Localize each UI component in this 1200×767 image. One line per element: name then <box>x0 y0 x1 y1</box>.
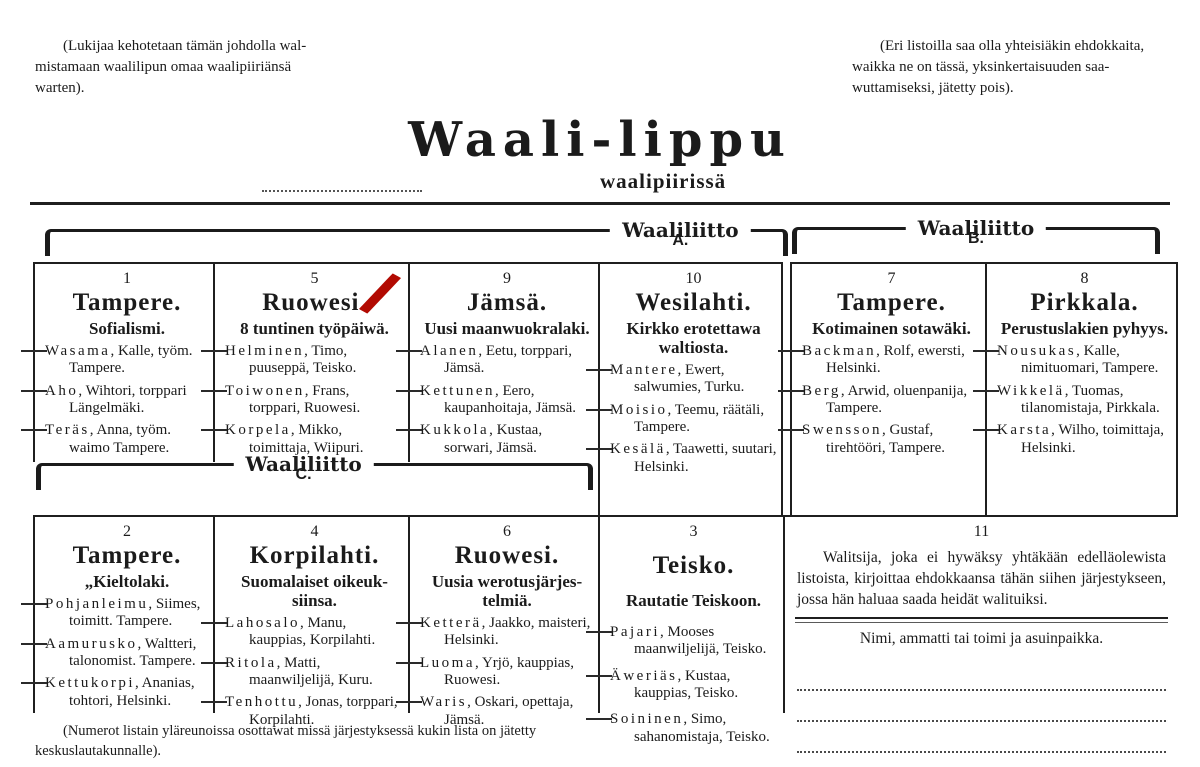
writein-blank-line <box>797 691 1166 722</box>
candidate-list: Helminen, Timo, puuseppä, Teisko.Toiwone… <box>225 343 404 457</box>
candidate-surname: Wasama <box>45 343 110 359</box>
page-subtitle: waalipiirissä <box>600 169 726 194</box>
candidate-surname: Karsta <box>997 422 1051 438</box>
candidate-surname: Swensson <box>802 422 882 438</box>
candidate-surname: Lahosalo <box>225 615 300 631</box>
candidate-surname: Teräs <box>45 422 90 438</box>
list-column: 10Wesilahti.Kirkko erotettawa waltiosta.… <box>598 266 781 481</box>
candidate-dash-line <box>201 622 227 624</box>
candidate-surname: Mantere <box>610 362 677 378</box>
writein-blank-line <box>797 722 1166 753</box>
coalition-c-letter: C. <box>296 466 312 484</box>
candidate-surname: Backman <box>802 343 876 359</box>
candidate-row: Kettukorpi, Ananias, tohtori, Helsinki. <box>45 675 209 710</box>
candidate-surname: Ritola <box>225 655 277 671</box>
list-slogan: Kirkko erotettawa waltiosta. <box>610 319 777 357</box>
list-column: 6Ruowesi.Uusia werotusjärjes- telmiä.Ket… <box>408 519 598 734</box>
candidate-row: Backman, Rolf, ewersti, Helsinki. <box>802 343 981 378</box>
candidate-row: Wasama, Kalle, työm. Tampere. <box>45 343 209 378</box>
candidate-dash-line <box>201 350 227 352</box>
candidate-dash-line <box>396 622 422 624</box>
coalition-bracket-b: Waaliliitto B. <box>792 227 1160 254</box>
candidate-row: Ketterä, Jaakko, maisteri, Helsinki. <box>420 615 594 650</box>
candidate-row: Kukkola, Kustaa, sorwari, Jämsä. <box>420 422 594 457</box>
candidate-row: Toiwonen, Frans, torppari, Ruowesi. <box>225 383 404 418</box>
writein-column: 11 Walitsija, joka ei hywäksy yhtäkään e… <box>785 519 1178 753</box>
candidate-row: Lahosalo, Manu, kauppias, Korpilahti. <box>225 615 404 650</box>
candidate-row: Korpela, Mikko, toimittaja, Wiipuri. <box>225 422 404 457</box>
candidate-surname: Kettukorpi <box>45 675 135 691</box>
list-slogan: Rautatie Teiskoon. <box>610 591 777 610</box>
candidate-row: Swensson, Gustaf, tirehtööri, Tampere. <box>802 422 981 457</box>
candidate-dash-line <box>973 350 999 352</box>
candidate-dash-line <box>396 390 422 392</box>
candidate-row: Kettunen, Eero, kaupanhoitaja, Jämsä. <box>420 383 594 418</box>
candidate-row: Pajari, Mooses maanwiljelijä, Teisko. <box>610 624 777 659</box>
list-number: 2 <box>45 523 209 541</box>
candidate-dash-line <box>396 429 422 431</box>
list-column: 8Pirkkala.Perustuslakien pyhyys.Nousukas… <box>985 266 1176 462</box>
ballot-sheet: (Lukijaa kehotetaan tämän johdolla wal- … <box>0 0 1200 767</box>
candidate-surname: Toiwonen <box>225 383 305 399</box>
candidate-surname: Nousukas <box>997 343 1076 359</box>
coalition-a-letter: A. <box>672 232 688 250</box>
candidate-dash-line <box>778 390 804 392</box>
list-place-header: Teisko. <box>610 553 777 579</box>
row2-top-border <box>33 515 1178 517</box>
candidate-list: Mantere, Ewert, salwumies, Turku.Moisio,… <box>610 362 777 476</box>
list-place-header: Tampere. <box>45 290 209 316</box>
writein-divider <box>795 617 1168 623</box>
list-slogan: Uusia werotusjärjes- telmiä. <box>420 572 594 610</box>
candidate-surname: Korpela <box>225 422 291 438</box>
candidate-list: Lahosalo, Manu, kauppias, Korpilahti.Rit… <box>225 615 404 729</box>
list-place-header: Wesilahti. <box>610 290 777 316</box>
candidate-row: Aho, Wihtori, torppari Längelmäki. <box>45 383 209 418</box>
candidate-dash-line <box>586 369 612 371</box>
list-column: 4Korpilahti.Suomalaiset oikeuk- siinsa.L… <box>213 519 408 734</box>
candidate-dash-line <box>973 390 999 392</box>
candidate-row: Nousukas, Kalle, nimituomari, Tampere. <box>997 343 1172 378</box>
list-number: 9 <box>420 270 594 288</box>
list-column: 7Tampere.Kotimainen sotawäki.Backman, Ro… <box>790 266 985 462</box>
candidate-dash-line <box>586 448 612 450</box>
candidate-dash-line <box>396 662 422 664</box>
title-rule <box>30 202 1170 205</box>
candidate-dash-line <box>201 390 227 392</box>
candidate-dash-line <box>21 429 47 431</box>
candidate-dash-line <box>586 631 612 633</box>
writein-instructions: Walitsija, joka ei hywäksy yhtäkään edel… <box>797 548 1166 610</box>
candidate-row: Helminen, Timo, puuseppä, Teisko. <box>225 343 404 378</box>
candidate-dash-line <box>201 701 227 703</box>
list-number: 5 <box>225 270 404 288</box>
bottom-note: (Numerot listain yläreunoissa osottawat … <box>35 722 610 761</box>
coalition-bracket-a: Waaliliitto A. <box>45 229 788 256</box>
candidate-dash-line <box>586 409 612 411</box>
list-number: 1 <box>45 270 209 288</box>
list-place-header: Tampere. <box>802 290 981 316</box>
candidate-surname: Kukkola <box>420 422 489 438</box>
candidate-row: Äweriäs, Kustaa, kauppias, Teisko. <box>610 668 777 703</box>
list-number: 8 <box>997 270 1172 288</box>
candidate-list: Backman, Rolf, ewersti, Helsinki.Berg, A… <box>802 343 981 457</box>
candidate-list: Wasama, Kalle, työm. Tampere.Aho, Wihtor… <box>45 343 209 457</box>
list-slogan: Perustuslakien pyhyys. <box>997 319 1172 338</box>
candidate-surname: Kesälä <box>610 441 666 457</box>
candidate-surname: Pajari <box>610 624 660 640</box>
list-column: 1Tampere.Sofialismi.Wasama, Kalle, työm.… <box>33 266 213 462</box>
candidate-dash-line <box>201 429 227 431</box>
note-top-right: (Eri listoilla saa olla yhteisiäkin ehdo… <box>852 36 1177 99</box>
list-place-header: Ruowesi. <box>420 543 594 569</box>
candidate-list: Nousukas, Kalle, nimituomari, Tampere.Wi… <box>997 343 1172 457</box>
candidate-surname: Tenhottu <box>225 694 298 710</box>
candidate-list: Alanen, Eetu, torppari, Jämsä.Kettunen, … <box>420 343 594 457</box>
candidate-surname: Moisio <box>610 402 668 418</box>
writein-lines <box>795 660 1168 753</box>
list-column: 2Tampere.„Kieltolaki.Pohjanleimu, Siimes… <box>33 519 213 715</box>
writein-blank-line <box>797 660 1166 691</box>
candidate-row: Soininen, Simo, sahanomistaja, Teisko. <box>610 711 777 746</box>
candidate-dash-line <box>21 682 47 684</box>
list-place-header: Pirkkala. <box>997 290 1172 316</box>
list-slogan: Uusi maanwuokralaki. <box>420 319 594 338</box>
list-slogan: 8 tuntinen työpäiwä. <box>225 319 404 338</box>
candidate-dash-line <box>778 350 804 352</box>
list-slogan: Kotimainen sotawäki. <box>802 319 981 338</box>
candidate-row: Ritola, Matti, maanwiljelijä, Kuru. <box>225 655 404 690</box>
candidate-row: Mantere, Ewert, salwumies, Turku. <box>610 362 777 397</box>
candidate-dash-line <box>21 390 47 392</box>
candidate-row: Alanen, Eetu, torppari, Jämsä. <box>420 343 594 378</box>
list-number: 10 <box>610 270 777 288</box>
candidate-row: Berg, Arwid, oluenpanija, Tampere. <box>802 383 981 418</box>
coalition-b-letter: B. <box>968 230 984 248</box>
table-border <box>1176 264 1178 515</box>
candidate-surname: Helminen <box>225 343 304 359</box>
list-number: 7 <box>802 270 981 288</box>
district-fill-in-line <box>262 176 422 192</box>
candidate-surname: Soininen <box>610 711 683 727</box>
candidate-surname: Aamurusko <box>45 636 138 652</box>
candidate-dash-line <box>21 603 47 605</box>
candidate-surname: Ketterä <box>420 615 482 631</box>
candidate-list: Pohjanleimu, Siimes, toimitt. Tampere.Aa… <box>45 596 209 710</box>
writein-list-number: 11 <box>795 523 1168 541</box>
list-slogan: Sofialismi. <box>45 319 209 338</box>
candidate-row: Karsta, Wilho, toimittaja, Helsinki. <box>997 422 1172 457</box>
list-place-header: Jämsä. <box>420 290 594 316</box>
candidate-row: Pohjanleimu, Siimes, toimitt. Tampere. <box>45 596 209 631</box>
candidate-dash-line <box>21 643 47 645</box>
candidate-surname: Pohjanleimu <box>45 596 148 612</box>
candidate-row: Wikkelä, Tuomas, tilanomistaja, Pirkkala… <box>997 383 1172 418</box>
candidate-dash-line <box>973 429 999 431</box>
list-place-header: Tampere. <box>45 543 209 569</box>
candidate-dash-line <box>201 662 227 664</box>
candidate-row: Aamurusko, Waltteri, talonomist. Tampere… <box>45 636 209 671</box>
list-number: 4 <box>225 523 404 541</box>
candidate-list: Pajari, Mooses maanwiljelijä, Teisko.Äwe… <box>610 624 777 746</box>
list-column: 9Jämsä.Uusi maanwuokralaki.Alanen, Eetu,… <box>408 266 598 462</box>
candidate-dash-line <box>586 718 612 720</box>
candidate-surname: Alanen <box>420 343 478 359</box>
candidate-row: Luoma, Yrjö, kauppias, Ruowesi. <box>420 655 594 690</box>
candidate-surname: Waris <box>420 694 467 710</box>
list-slogan: Suomalaiset oikeuk- siinsa. <box>225 572 404 610</box>
candidate-dash-line <box>396 701 422 703</box>
candidate-dash-line <box>21 350 47 352</box>
list-number: 6 <box>420 523 594 541</box>
candidate-surname: Berg <box>802 383 841 399</box>
candidate-list: Ketterä, Jaakko, maisteri, Helsinki.Luom… <box>420 615 594 729</box>
candidate-dash-line <box>586 675 612 677</box>
writein-fields-header: Nimi, ammatti tai toimi ja asuinpaikka. <box>795 630 1168 648</box>
row1-top-border-b <box>790 262 1178 264</box>
list-place-header: Korpilahti. <box>225 543 404 569</box>
note-top-left: (Lukijaa kehotetaan tämän johdolla wal- … <box>35 36 407 99</box>
candidate-surname: Aho <box>45 383 78 399</box>
candidate-surname: Äweriäs <box>610 668 677 684</box>
candidate-row: Teräs, Anna, työm. waimo Tampere. <box>45 422 209 457</box>
candidate-surname: Wikkelä <box>997 383 1065 399</box>
candidate-surname: Kettunen <box>420 383 495 399</box>
list-number: 3 <box>610 523 777 541</box>
list-slogan: „Kieltolaki. <box>45 572 209 591</box>
candidate-surname: Luoma <box>420 655 475 671</box>
page-title: Waali-lippu <box>0 112 1200 168</box>
candidate-dash-line <box>778 429 804 431</box>
candidate-row: Moisio, Teemu, räätäli, Tampere. <box>610 402 777 437</box>
coalition-bracket-c: Waaliliitto C. <box>36 463 593 490</box>
candidate-row: Kesälä, Taawetti, suutari, Helsinki. <box>610 441 777 476</box>
list-column: 3Teisko.Rautatie Teiskoon.Pajari, Mooses… <box>598 519 781 755</box>
candidate-dash-line <box>396 350 422 352</box>
